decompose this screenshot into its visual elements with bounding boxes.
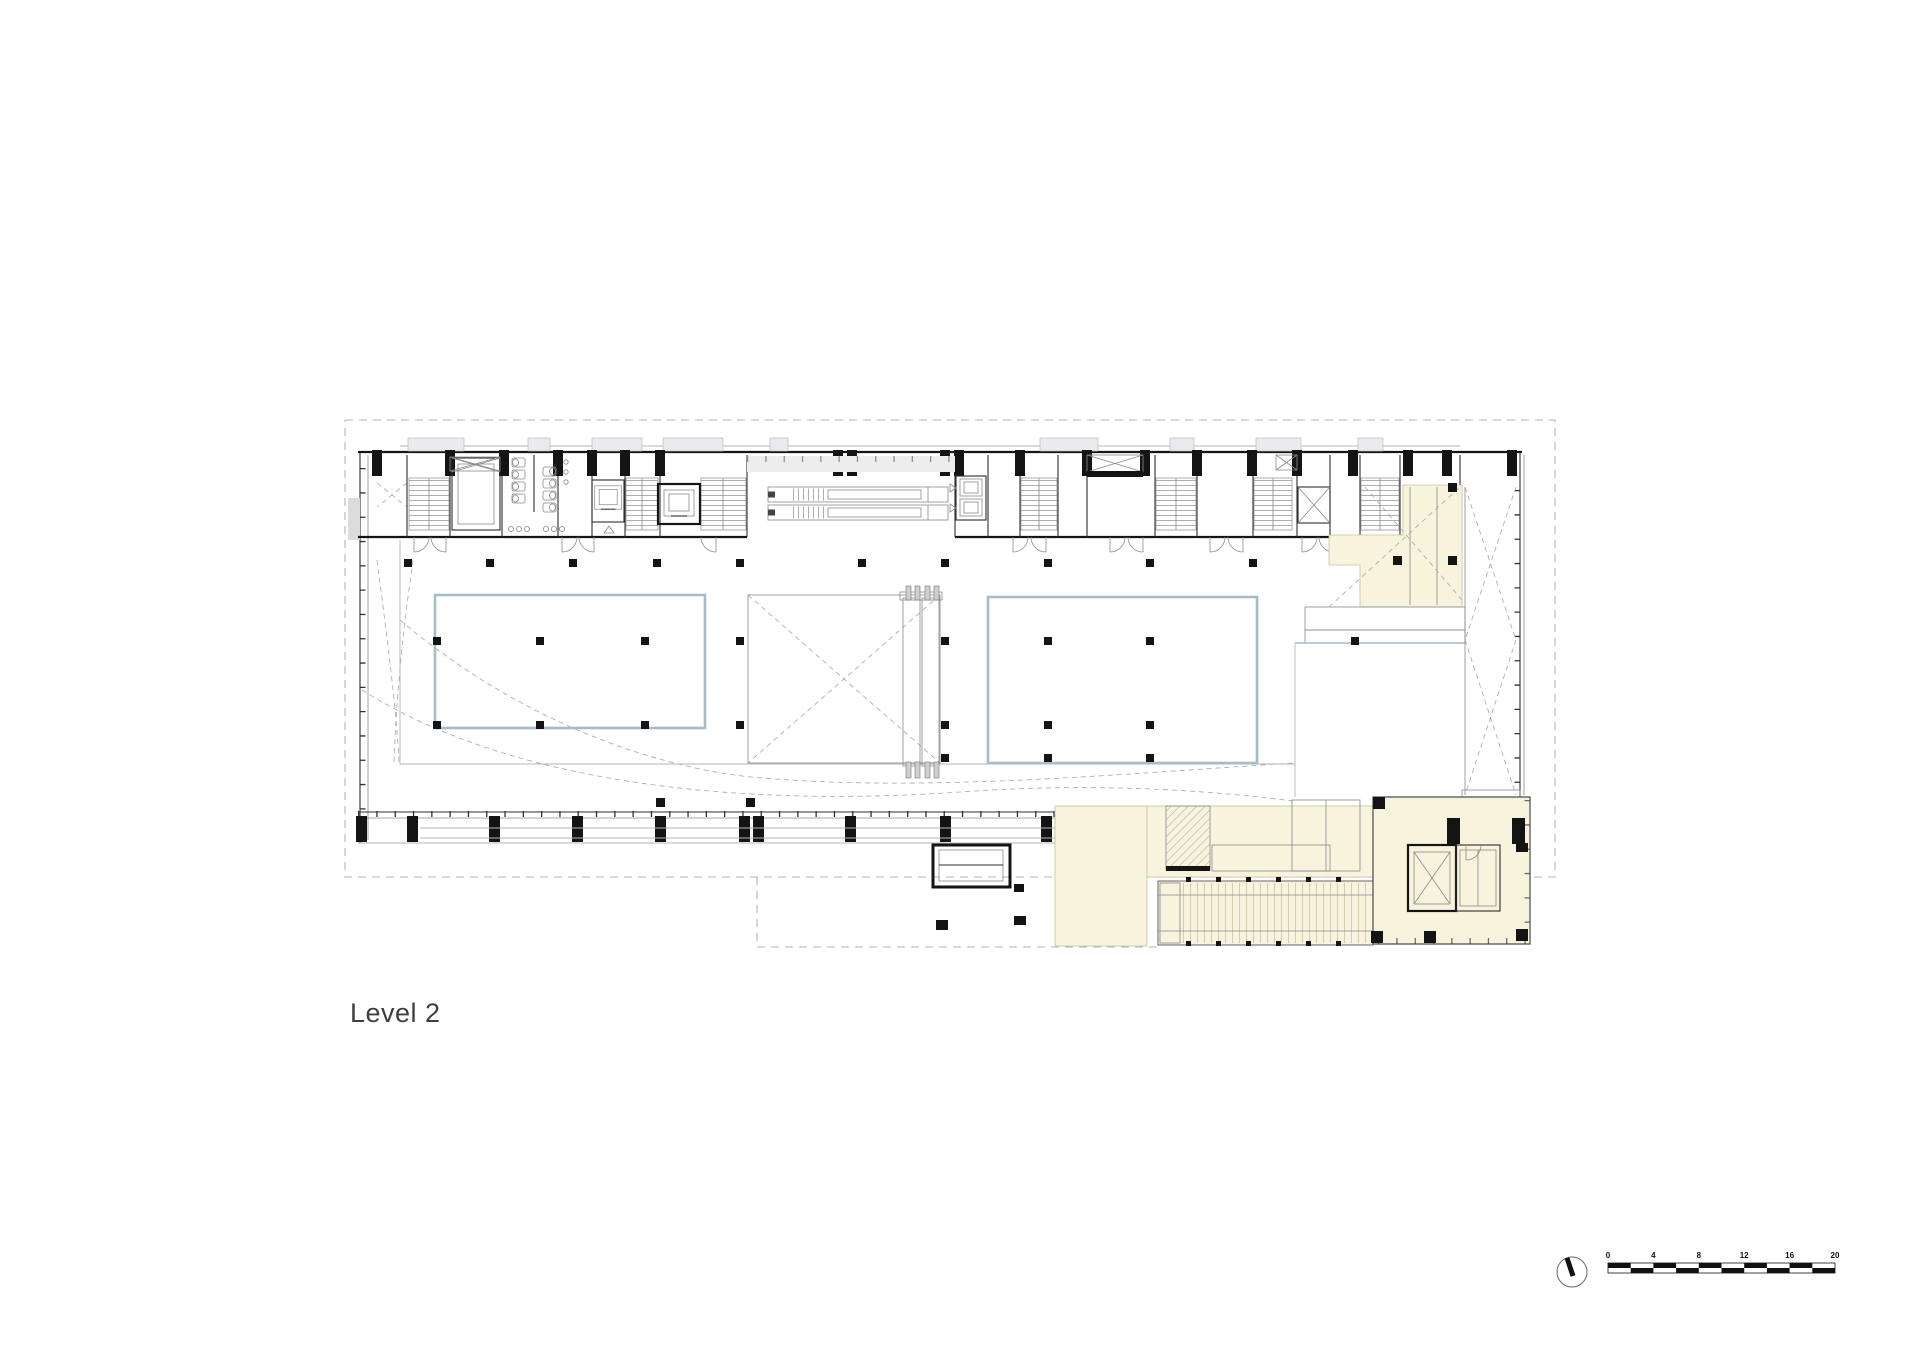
east-terrace-zone	[1295, 483, 1520, 814]
svg-text:16: 16	[1785, 1251, 1794, 1260]
atrium-brace-marks	[1465, 487, 1516, 795]
building-envelope	[348, 438, 1524, 843]
elevator-door-marker	[604, 526, 614, 533]
grand-stair	[1295, 607, 1465, 643]
floor-plan-drawing: Level 2 0 4 8 12 16 20	[0, 0, 1920, 1357]
annex-louver-bar	[1158, 877, 1373, 946]
annex-plaza-cream	[1055, 806, 1147, 946]
escalator-pair-central	[900, 586, 942, 778]
scale-bar: 0 4 8 12 16 20	[1606, 1251, 1840, 1273]
annex-east-block	[1371, 797, 1530, 944]
open-floor	[400, 540, 1295, 778]
floor-plan-sheet: Level 2 0 4 8 12 16 20	[0, 0, 1920, 1357]
level-label: Level 2	[350, 998, 441, 1028]
west-shaft	[348, 498, 360, 540]
core-band-doors	[414, 537, 1445, 552]
escalator-bank-north	[747, 456, 955, 520]
annex-freestanding-stair	[933, 845, 1010, 887]
column-grid	[404, 559, 1359, 762]
scale-bar-labels: 0 4 8 12 16 20	[1606, 1251, 1840, 1260]
central-void	[748, 586, 942, 778]
east-hall-outline	[988, 597, 1257, 763]
svg-text:4: 4	[1651, 1251, 1656, 1260]
svg-text:20: 20	[1831, 1251, 1840, 1260]
west-hall-outline	[435, 595, 705, 728]
svg-text:12: 12	[1740, 1251, 1749, 1260]
svg-text:8: 8	[1697, 1251, 1702, 1260]
svg-text:0: 0	[1606, 1251, 1611, 1260]
entry-canopies	[408, 438, 1383, 451]
north-arrow-icon	[1557, 1257, 1587, 1287]
south-annex	[933, 797, 1530, 946]
annex-ramp	[1166, 806, 1210, 871]
